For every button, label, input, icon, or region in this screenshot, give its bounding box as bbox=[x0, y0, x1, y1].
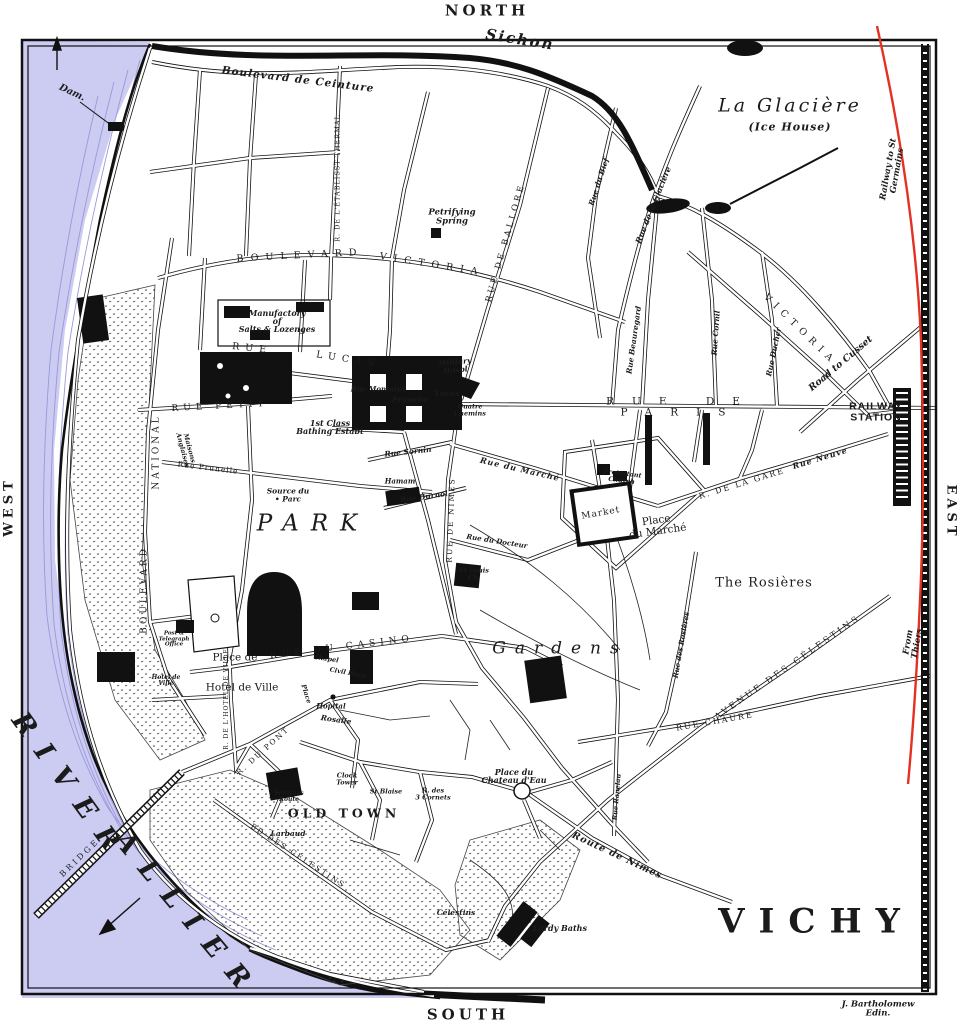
market-hall bbox=[572, 483, 637, 545]
dam-structure bbox=[108, 122, 124, 131]
map-canvas bbox=[0, 0, 964, 1026]
chateau-eau-circle bbox=[514, 783, 530, 799]
vichy-map: NORTHSOUTHWESTEASTJ. Bartholomew Edin.VI… bbox=[0, 0, 964, 1026]
